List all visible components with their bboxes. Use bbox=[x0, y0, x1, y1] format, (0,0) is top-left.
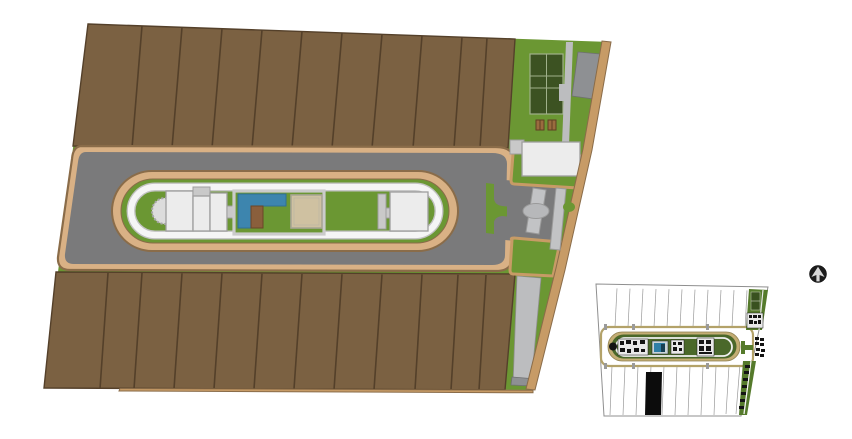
main-site-plan bbox=[44, 24, 611, 393]
racetrack-complex bbox=[112, 171, 458, 251]
inset-amenity-northeast bbox=[746, 289, 768, 330]
highlighted-plot bbox=[645, 372, 662, 415]
residential-plots-north bbox=[73, 24, 515, 148]
gatehouse-building bbox=[522, 142, 580, 176]
site-plan-image bbox=[0, 0, 852, 439]
north-arrow-icon bbox=[810, 266, 827, 283]
sand-arena bbox=[291, 195, 322, 228]
residential-plots-south bbox=[44, 272, 533, 393]
site-plan-canvas bbox=[0, 0, 852, 439]
inset-pool-symbol bbox=[652, 341, 668, 354]
inset-stable-symbol bbox=[697, 338, 714, 356]
pool-courtyard bbox=[234, 191, 324, 234]
inset-mid-building-symbol bbox=[671, 340, 684, 354]
stable-building bbox=[378, 192, 428, 231]
pool-deck bbox=[251, 206, 263, 228]
key-plan-inset bbox=[596, 284, 768, 416]
gate-booth bbox=[523, 204, 549, 219]
gate-outer-island bbox=[563, 202, 575, 212]
